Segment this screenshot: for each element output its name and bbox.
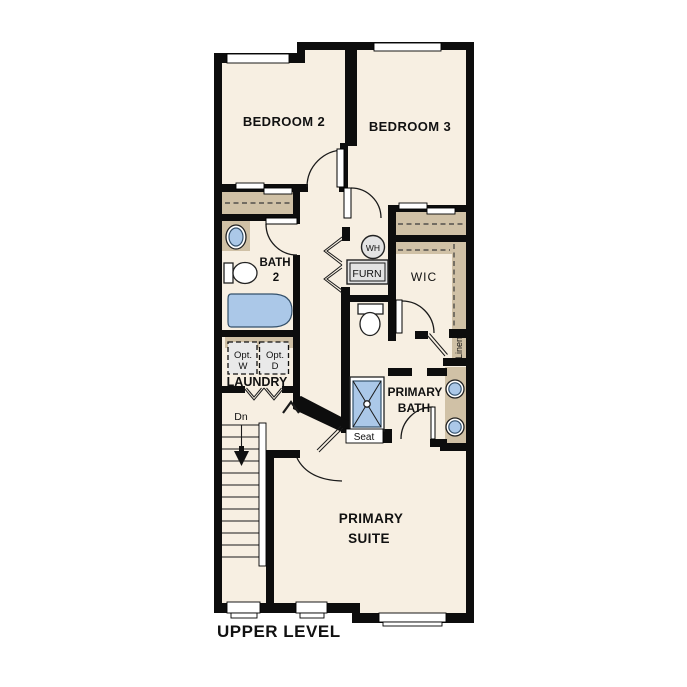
stair-railing xyxy=(259,423,266,566)
floor-plan-svg: BEDROOM 2 BEDROOM 3 BATH 2 WH FURN WIC L… xyxy=(0,0,687,687)
bedroom3-label: BEDROOM 3 xyxy=(369,119,451,134)
primary-bath-door xyxy=(431,407,435,439)
wic-top-shelf xyxy=(396,242,452,254)
washer-label-line2: W xyxy=(239,361,248,372)
wic-label: WIC xyxy=(411,270,437,284)
bedroom3-door xyxy=(344,188,351,218)
primary-bath-label-line2: BATH xyxy=(398,401,430,415)
bedroom2-window xyxy=(227,54,289,63)
primary-suite-label-line1: PRIMARY xyxy=(339,511,404,526)
bath2-door xyxy=(266,218,297,224)
water-heater-label: WH xyxy=(366,243,380,253)
bedroom2-closet-shelf xyxy=(222,192,293,214)
dryer-label-line1: Opt. xyxy=(266,350,284,361)
bath2-tub xyxy=(228,294,292,327)
bedroom3-closet-doors xyxy=(399,203,427,209)
bath2-label-line2: 2 xyxy=(273,272,279,284)
stairs-down-label: Dn xyxy=(234,411,248,423)
wic-door xyxy=(396,300,402,333)
washer-label-line1: Opt. xyxy=(234,350,252,361)
dryer-label-line2: D xyxy=(272,361,279,372)
linen-label: Linen xyxy=(454,337,464,359)
bedroom2-door xyxy=(337,149,344,187)
bath2-toilet xyxy=(224,263,233,283)
plan-title: UPPER LEVEL xyxy=(217,622,341,641)
stair-window xyxy=(227,602,260,613)
bedroom2-closet-doors xyxy=(236,183,264,189)
suite-window-right xyxy=(379,613,446,622)
bedroom3-window xyxy=(374,43,441,51)
primary-bath-label-line1: PRIMARY xyxy=(388,385,443,399)
bedroom2-label: BEDROOM 2 xyxy=(243,114,325,129)
suite-window-left xyxy=(296,602,327,613)
primary-suite-label-line2: SUITE xyxy=(348,531,390,546)
laundry-label: LAUNDRY xyxy=(227,375,288,389)
furnace-label: FURN xyxy=(352,268,381,280)
floor-plan-canvas: BEDROOM 2 BEDROOM 3 BATH 2 WH FURN WIC L… xyxy=(0,0,687,687)
shower-drain xyxy=(364,401,370,407)
bath2-label-line1: BATH xyxy=(259,257,290,269)
shower-seat-label: Seat xyxy=(354,432,375,443)
